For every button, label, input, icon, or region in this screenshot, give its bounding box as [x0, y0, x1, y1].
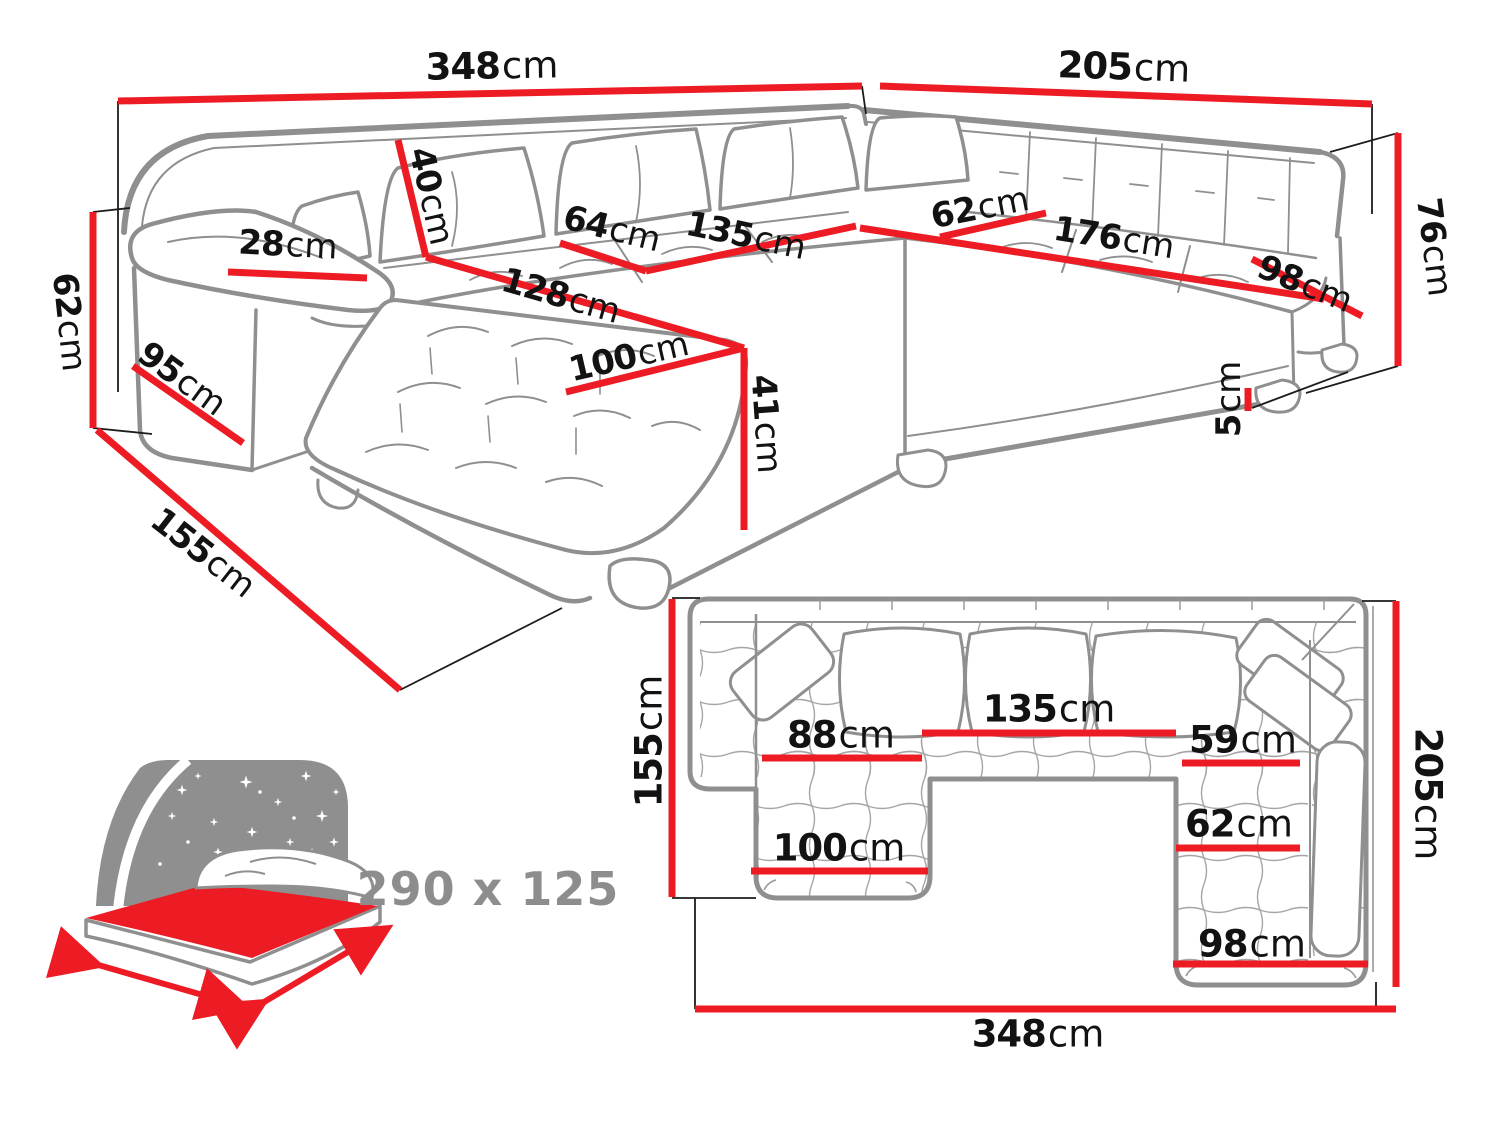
dim-3d-armrest-top-width: 28cm	[238, 225, 339, 264]
sofa-dimension-diagram: 348cm 205cm 76cm 5cm 62cm 95cm 155cm 28c…	[0, 0, 1500, 1125]
dim-top-total-width: 348cm	[972, 1016, 1105, 1053]
dim-3d-leg-height: 5cm	[1212, 361, 1246, 438]
dim-top-right-seat-depth: 59cm	[1189, 722, 1297, 759]
dim-3d-armrest-height: 62cm	[47, 271, 91, 373]
dim-top-chaise-seat-width: 88cm	[787, 717, 895, 754]
dim-top-left-depth: 155cm	[631, 675, 668, 808]
dim-top-right-side-depth: 205cm	[1410, 728, 1447, 861]
dim-3d-back-width-left: 348cm	[425, 46, 558, 85]
dim-top-middle-seat-width: 135cm	[983, 691, 1116, 728]
sleeping-area-size-label: 290 x 125	[357, 862, 620, 916]
dim-top-right-inner-depth: 62cm	[1185, 806, 1293, 843]
dim-top-chaise-width: 100cm	[773, 830, 906, 867]
dim-3d-back-width-right: 205cm	[1057, 46, 1191, 88]
dim-top-right-seat-width: 98cm	[1198, 926, 1306, 963]
sleeping-function-icon	[0, 760, 380, 1008]
dim-3d-seat-height: 41cm	[746, 373, 787, 474]
